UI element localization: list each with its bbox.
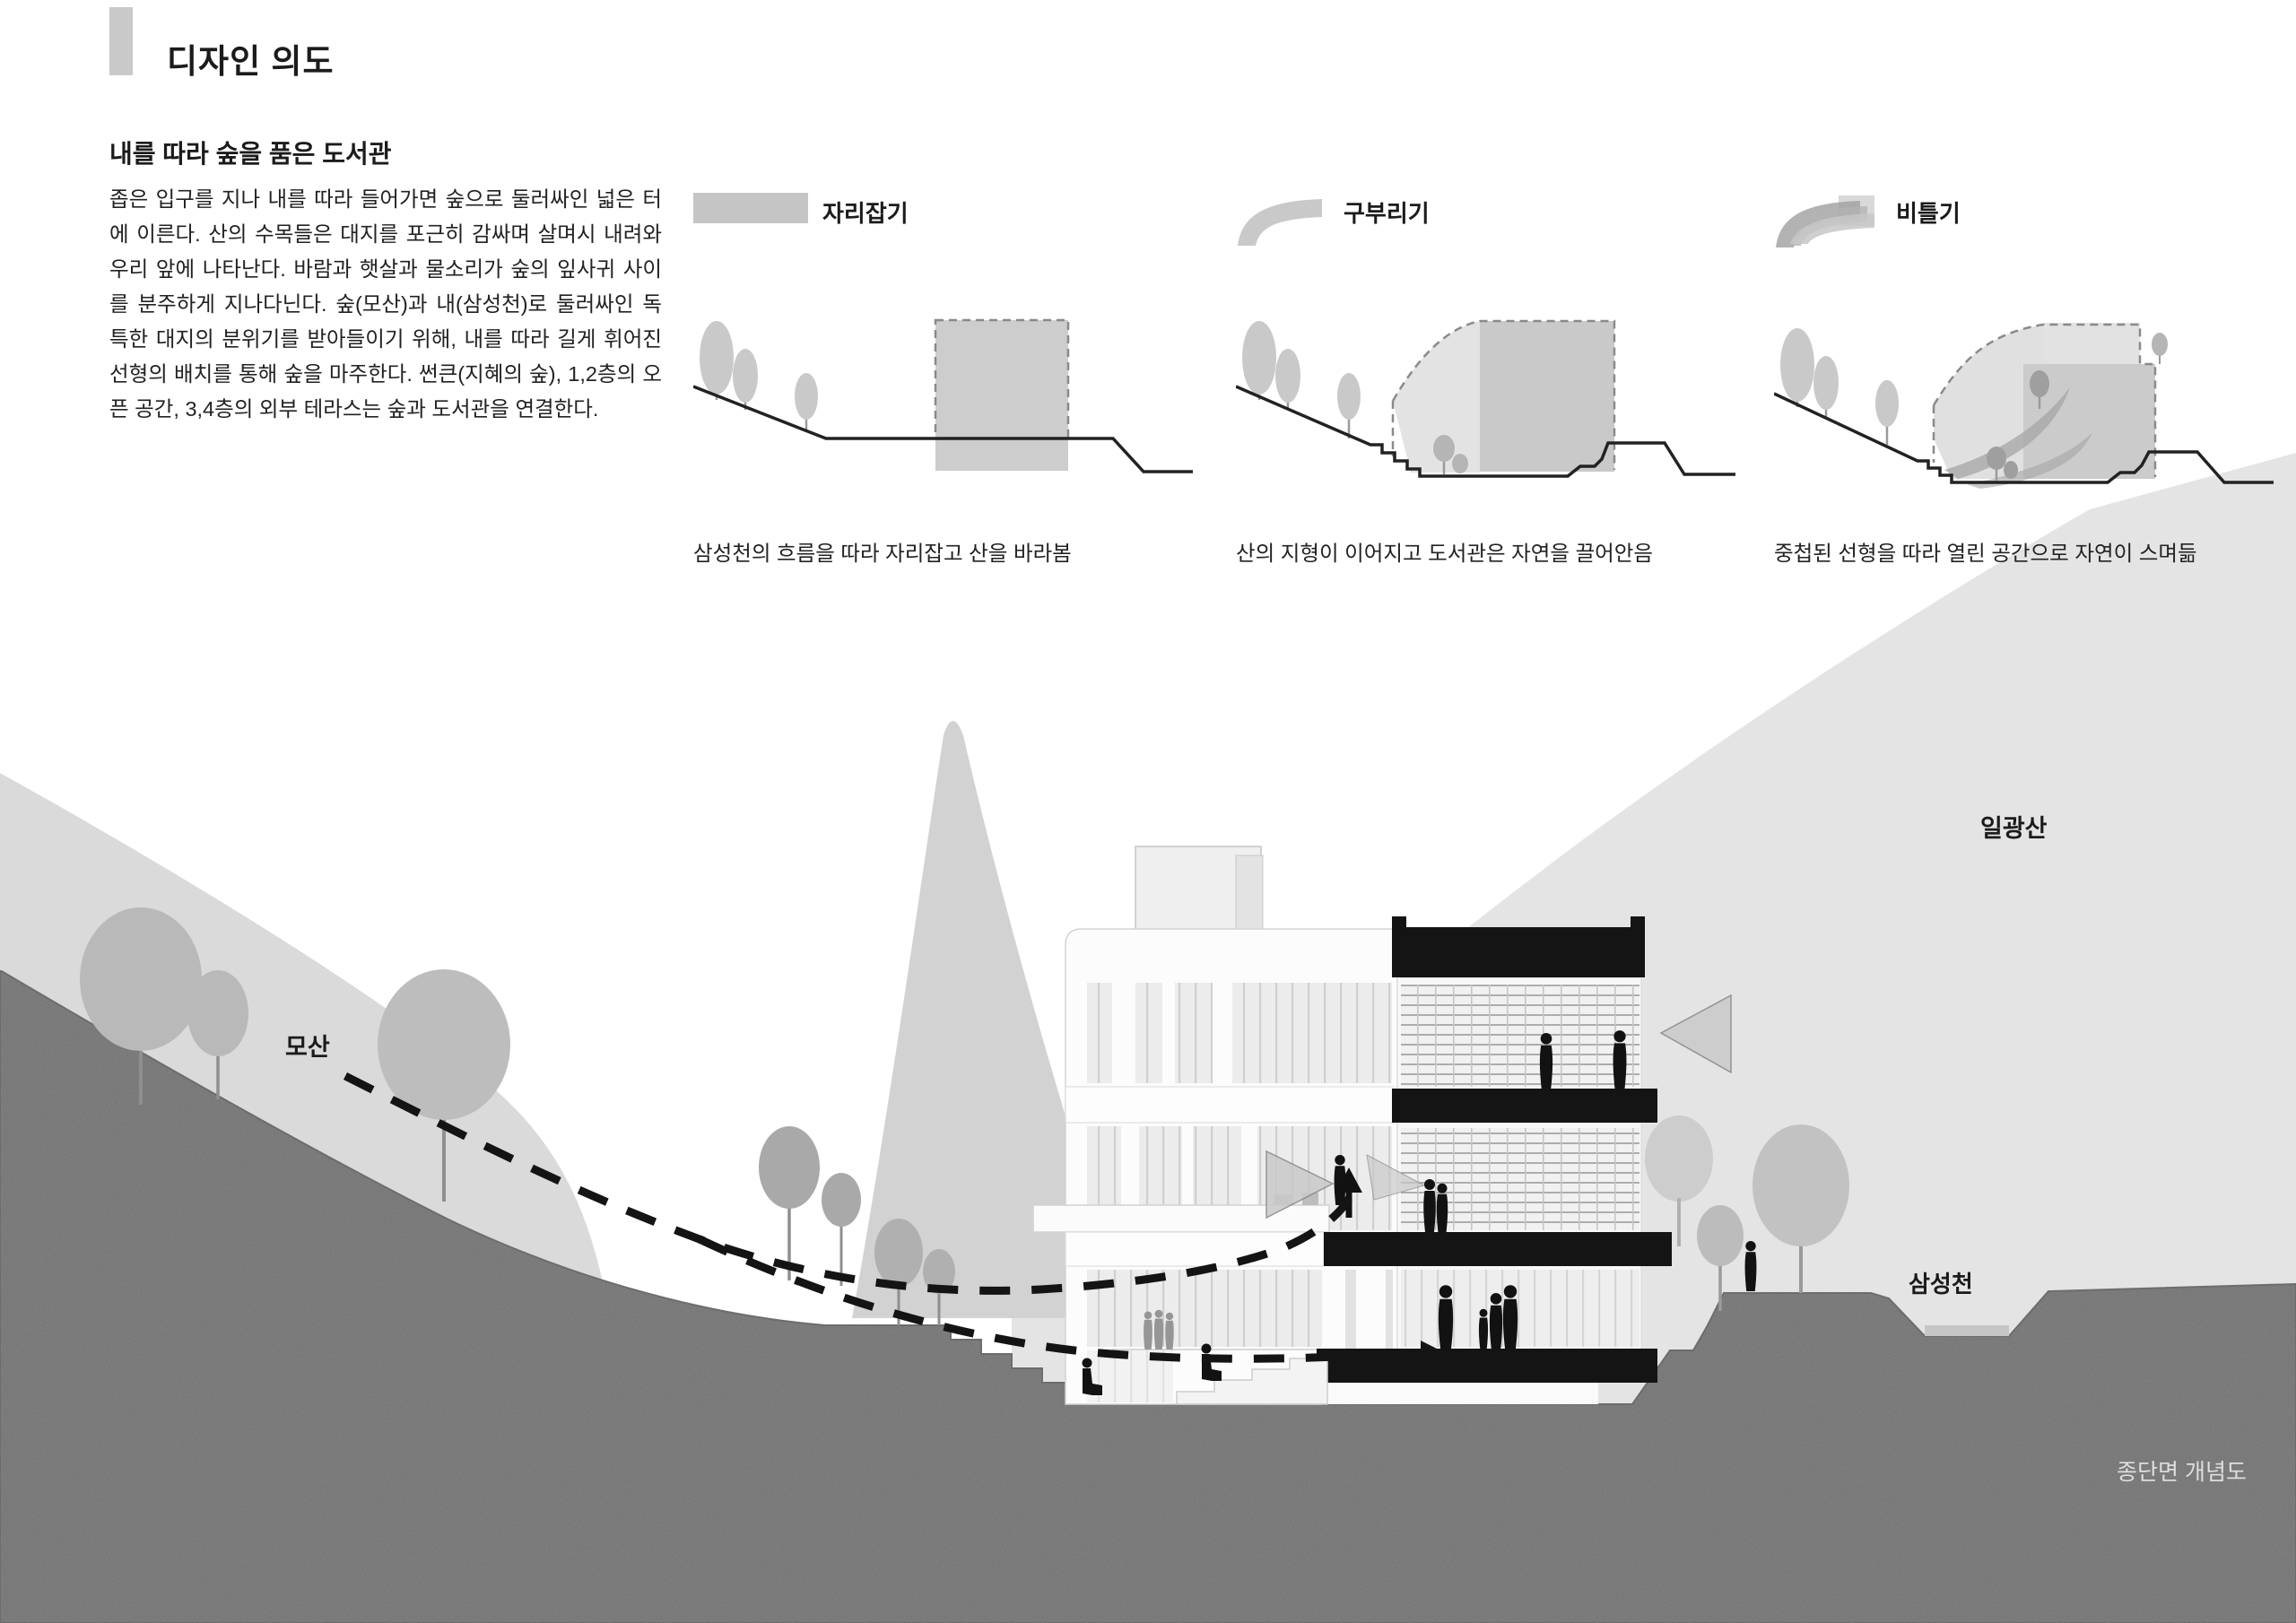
twisted-bands-icon xyxy=(1774,190,1880,247)
label-left-mountain: 모산 xyxy=(285,1028,330,1063)
label-stream: 삼성천 xyxy=(1909,1266,1973,1299)
stream-water xyxy=(1925,1325,2009,1336)
concept-column-positioning: 자리잡기 삼성천의 흐름을 따라 자리잡고 산을 바라봄 xyxy=(693,190,1193,567)
section-accent-bar xyxy=(109,7,133,75)
concept-column-twisting: 비틀기 중첩된 선형을 따라 열린 공간으로 자연이 스며듦 xyxy=(1774,190,2274,567)
label-right-mountain: 일광산 xyxy=(1980,809,2048,844)
concept-label: 구부리기 xyxy=(1344,195,1430,229)
concept-column-bending: 구부리기 산의 지형이 이어지고 도서관은 자연을 끌어안음 xyxy=(1236,190,1735,567)
concept-label: 자리잡기 xyxy=(822,195,909,229)
curved-band-icon xyxy=(1236,190,1326,246)
concept-header: 자리잡기 xyxy=(693,190,1193,247)
concept-caption: 삼성천의 흐름을 따라 자리잡고 산을 바라봄 xyxy=(693,536,1072,567)
concept-diagram-positioning xyxy=(693,291,1193,506)
people-silhouettes-faint xyxy=(1144,1310,1174,1350)
concept-header: 비틀기 xyxy=(1774,190,2274,247)
concept-diagram-bending xyxy=(1236,291,1735,506)
intro-body: 좁은 입구를 지나 내를 따라 들어가면 숲으로 둘러싸인 넓은 터에 이른다.… xyxy=(109,182,662,427)
concept-header: 구부리기 xyxy=(1236,190,1735,247)
concept-label: 비틀기 xyxy=(1896,195,1961,229)
presentation-board: 디자인 의도 내를 따라 숲을 품은 도서관 좁은 입구를 지나 내를 따라 들… xyxy=(0,0,2296,1623)
concept-caption: 중첩된 선형을 따라 열린 공간으로 자연이 스며듦 xyxy=(1774,536,2197,567)
section-drawing-caption: 종단면 개념도 xyxy=(2117,1454,2247,1487)
concept-diagram-twisting xyxy=(1774,291,2276,506)
block-bar-icon xyxy=(693,190,808,226)
concept-caption: 산의 지형이 이어지고 도서관은 자연을 끌어안음 xyxy=(1236,536,1653,567)
intro-heading: 내를 따라 숲을 품은 도서관 xyxy=(109,135,391,170)
page-title: 디자인 의도 xyxy=(167,34,334,82)
